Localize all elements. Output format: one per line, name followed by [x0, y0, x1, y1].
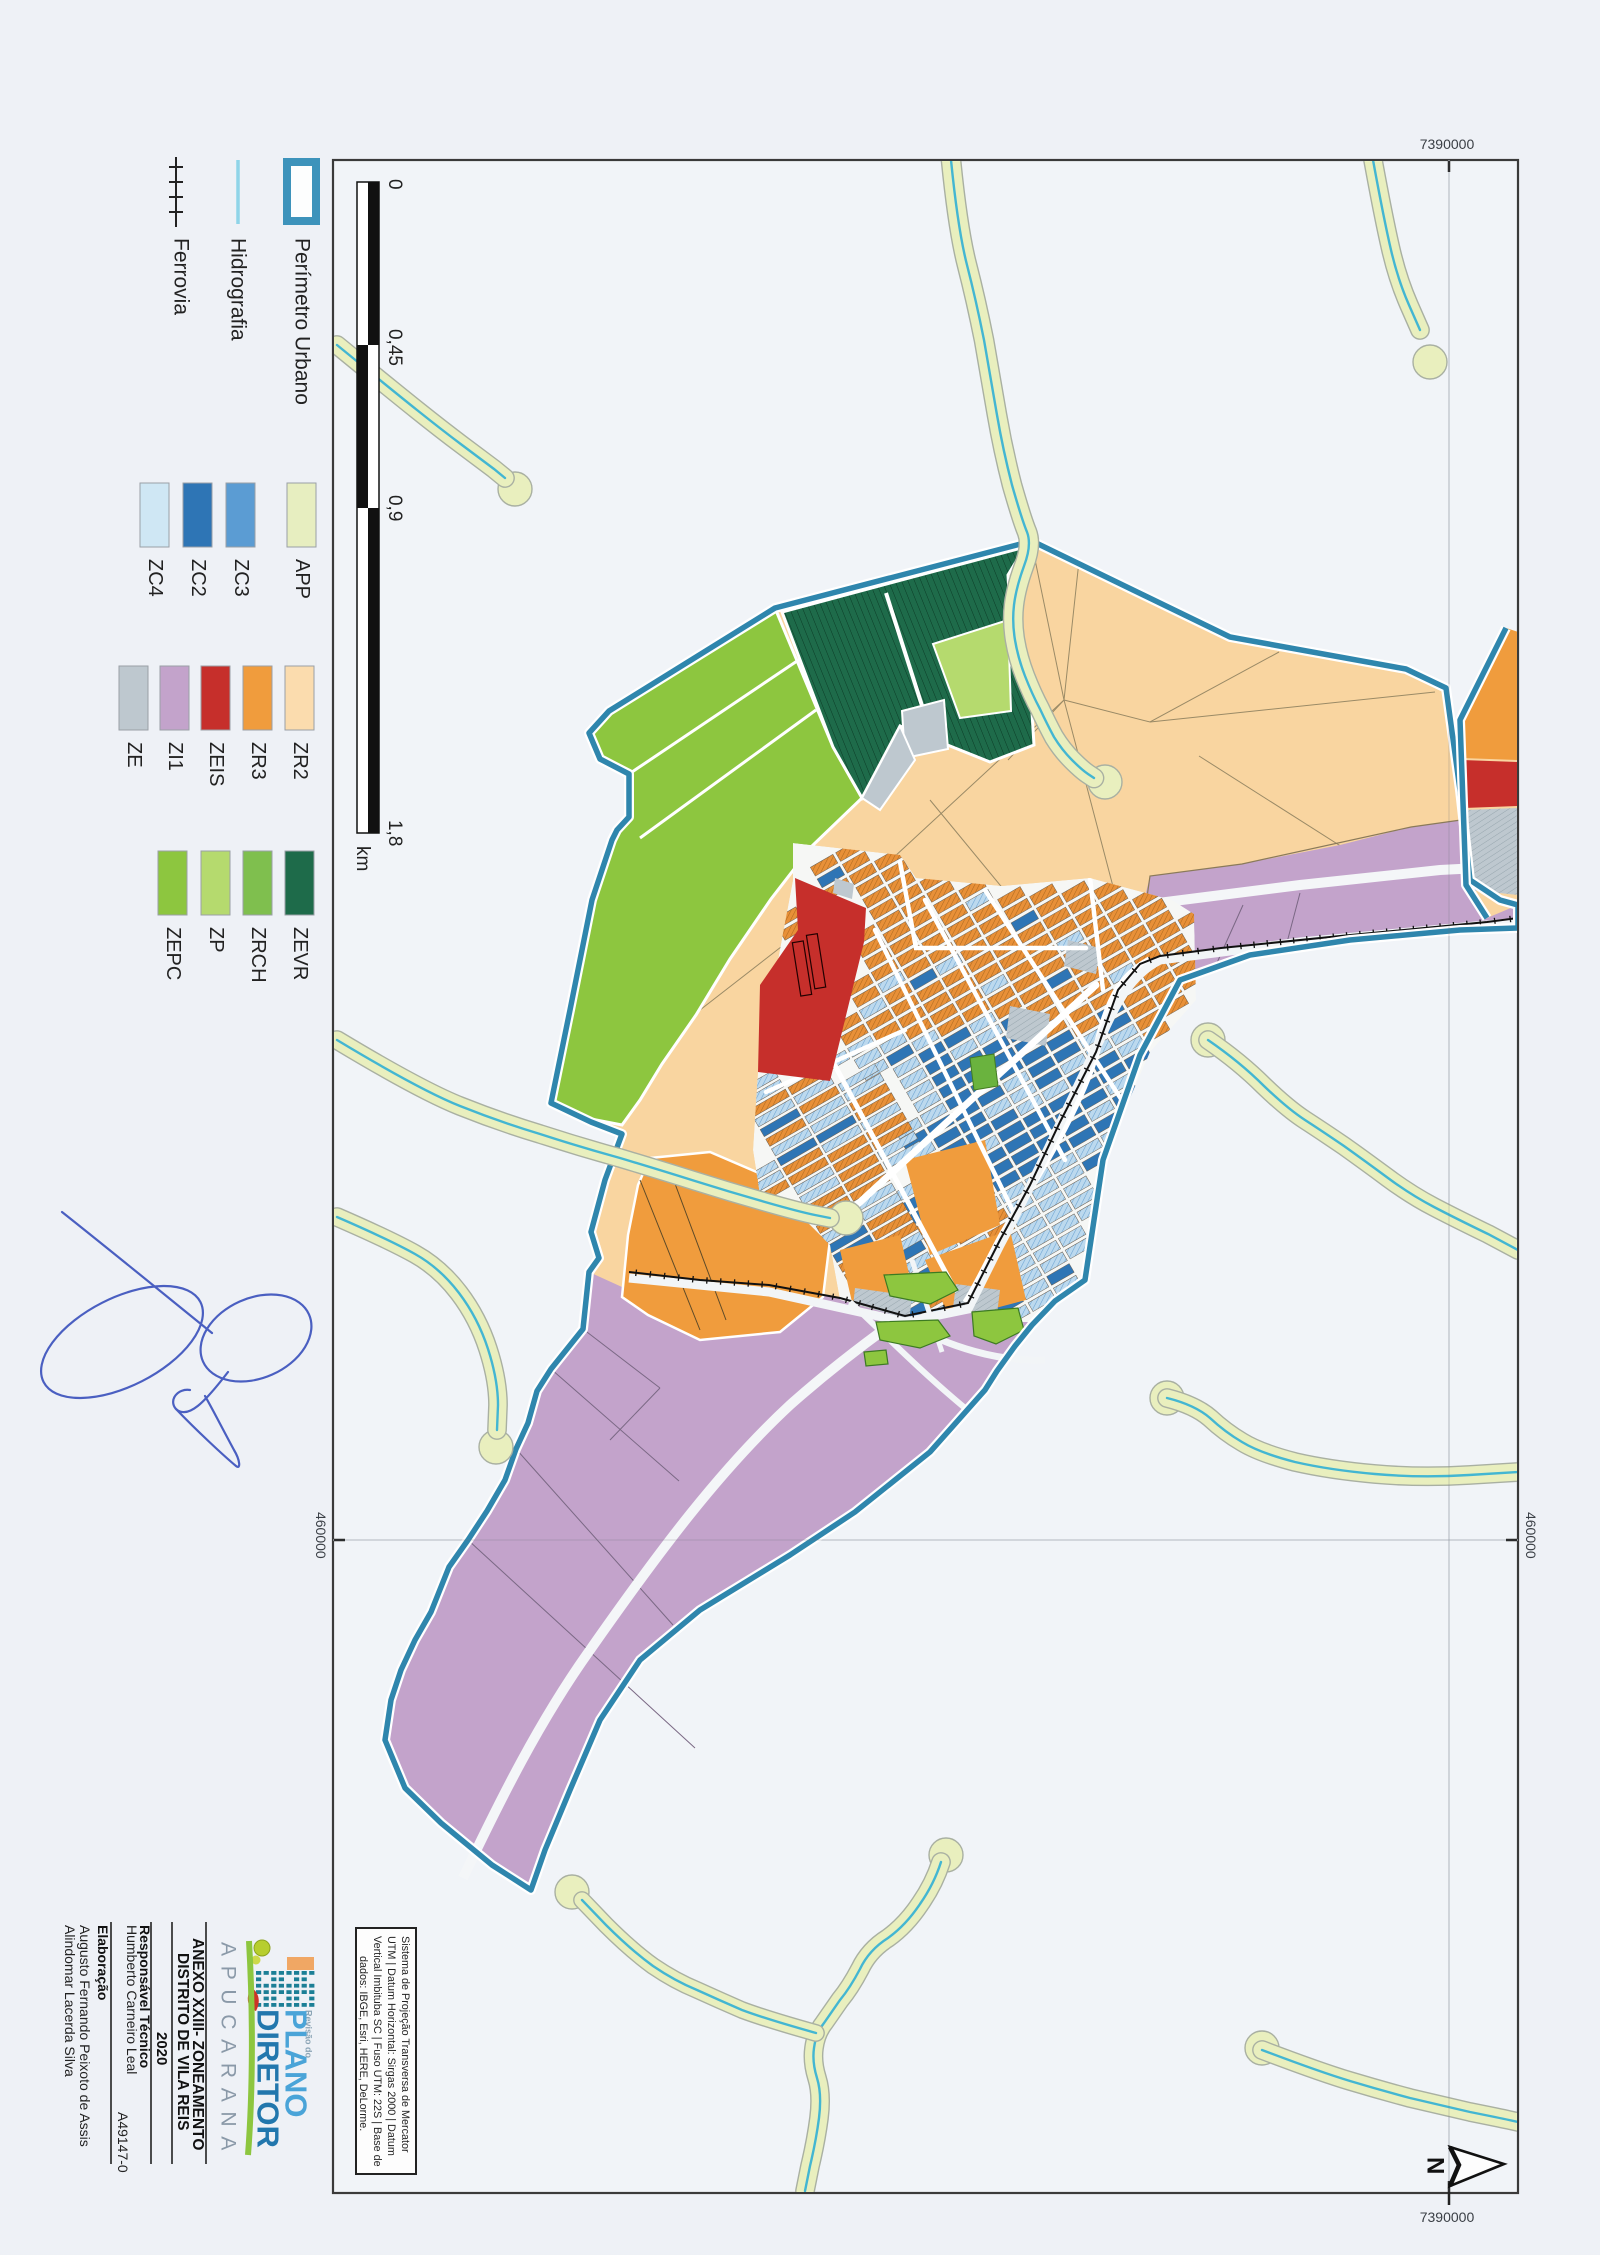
svg-text:7390000: 7390000 [1420, 2209, 1475, 2225]
svg-text:Alindomar Lacerda Silva: Alindomar Lacerda Silva [62, 1925, 78, 2077]
svg-text:APUCARANA: APUCARANA [216, 1942, 239, 2160]
svg-text:ZI1: ZI1 [164, 742, 186, 771]
svg-text:DISTRITO DE VILA REIS: DISTRITO DE VILA REIS [174, 1953, 191, 2130]
svg-text:ZC4: ZC4 [144, 559, 166, 597]
svg-text:0: 0 [384, 179, 405, 190]
svg-text:ZP: ZP [205, 927, 227, 953]
svg-text:Augusto Fernando Peixoto de As: Augusto Fernando Peixoto de Assis [77, 1925, 93, 2147]
svg-text:ZEVR: ZEVR [289, 927, 311, 980]
svg-text:460000: 460000 [1523, 1512, 1539, 1559]
svg-text:dados: IBGE, Esri, HERE, DeLor: dados: IBGE, Esri, HERE, DeLorme. [357, 1956, 369, 2131]
svg-text:N: N [1422, 2157, 1449, 2174]
svg-text:km: km [352, 846, 373, 871]
svg-text:ZEPC: ZEPC [162, 927, 184, 980]
svg-text:ZRCH: ZRCH [247, 927, 269, 983]
svg-text:2020: 2020 [153, 2032, 170, 2065]
svg-text:UTM | Datum Horizontal: Sirgas: UTM | Datum Horizontal: Sirgas 2000 | Da… [385, 1936, 397, 2156]
svg-text:Hidrografia: Hidrografia [226, 238, 249, 341]
svg-text:Elaboração: Elaboração [95, 1925, 111, 2000]
svg-text:DIRETOR: DIRETOR [251, 2009, 286, 2148]
svg-text:Sistema de Projeção Transversa: Sistema de Projeção Transversa de Mercat… [399, 1936, 411, 2153]
svg-text:Perímetro Urbano: Perímetro Urbano [290, 238, 313, 405]
svg-text:Ferrovia: Ferrovia [169, 238, 192, 315]
svg-text:ZC3: ZC3 [230, 559, 252, 597]
svg-text:ZEIS: ZEIS [205, 742, 227, 786]
svg-text:ZC2: ZC2 [187, 559, 209, 597]
svg-text:A49147-0: A49147-0 [115, 2112, 131, 2173]
svg-text:Humberto Carneiro Leal: Humberto Carneiro Leal [124, 1925, 140, 2074]
svg-text:7390000: 7390000 [1420, 136, 1475, 152]
svg-text:1,8: 1,8 [384, 820, 405, 846]
svg-text:0,9: 0,9 [384, 495, 405, 521]
svg-text:ZE: ZE [123, 742, 145, 768]
svg-text:ZR3: ZR3 [247, 742, 269, 780]
svg-text:Vertical Imbituba SC | Fuso UT: Vertical Imbituba SC | Fuso UTM: 22S | B… [371, 1936, 383, 2167]
svg-text:460000: 460000 [313, 1512, 329, 1559]
svg-text:0,45: 0,45 [384, 329, 405, 366]
svg-text:ZR2: ZR2 [289, 742, 311, 780]
svg-text:APP: APP [291, 559, 313, 599]
